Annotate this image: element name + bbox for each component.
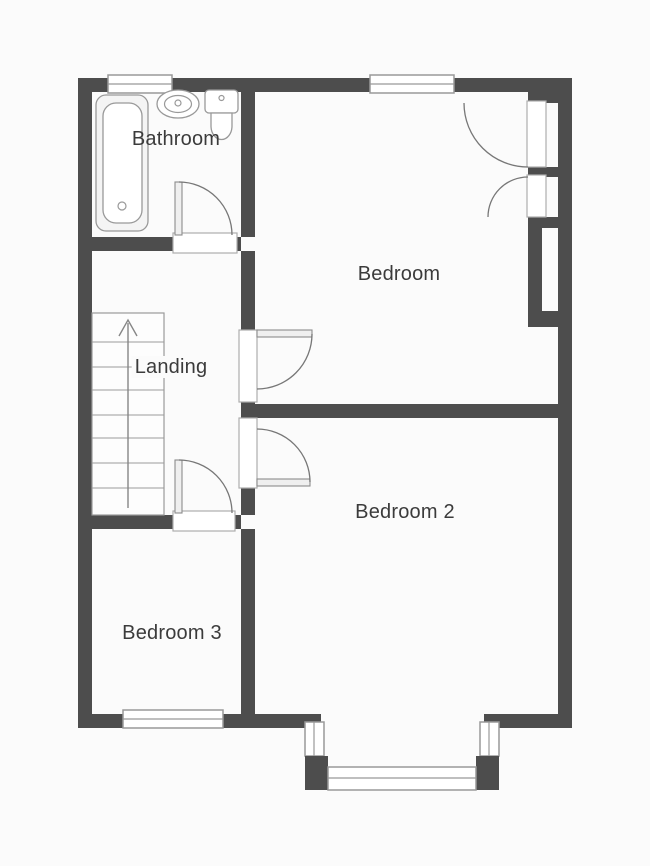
wall-center-vertical-2	[241, 251, 255, 332]
alcove-bottom-wall	[528, 311, 560, 327]
bathroom-window	[108, 75, 172, 93]
bedroom-window	[370, 75, 454, 93]
wall-right	[558, 78, 572, 728]
wardrobe-stub-lower	[528, 217, 560, 228]
bedroom-wardrobe-structure	[464, 92, 560, 327]
wall-center-vertical-4	[241, 488, 255, 515]
wall-bathroom-south-left	[92, 237, 175, 251]
bathtub-icon	[96, 95, 148, 231]
wall-left	[78, 78, 92, 728]
alcove-left-wall	[528, 228, 542, 311]
bedroom-door	[239, 330, 312, 402]
bedroom3-window	[123, 710, 223, 728]
bathroom-fixtures	[96, 90, 238, 231]
wall-center-vertical-3	[241, 400, 255, 420]
basin-icon	[157, 90, 199, 118]
wardrobe-door-arc-2	[488, 177, 528, 217]
windows	[108, 75, 499, 790]
wall-landing-south-left	[92, 515, 175, 529]
wardrobe-door-arc-1	[464, 103, 528, 167]
room-label-landing: Landing	[132, 356, 211, 378]
bedroom3-door	[173, 460, 235, 531]
bay-window	[305, 722, 499, 790]
stairs	[92, 313, 164, 515]
wall-center-vertical-1	[241, 92, 255, 237]
room-label-bedroom2: Bedroom 2	[355, 502, 455, 522]
room-label-bedroom: Bedroom	[358, 264, 441, 284]
floor-plan: Bathroom Bedroom Landing Bedroom 2 Bedro…	[0, 0, 650, 866]
room-label-bathroom: Bathroom	[132, 129, 220, 149]
bay-post-left	[305, 756, 328, 790]
wall-bedroom-divider	[255, 404, 558, 418]
wall-center-vertical-5	[241, 529, 255, 714]
bathroom-door	[173, 182, 237, 253]
wardrobe-door-leaf-1	[527, 101, 546, 167]
room-label-bedroom3: Bedroom 3	[122, 623, 222, 643]
bedroom2-door	[239, 418, 310, 488]
floor-plan-drawing	[0, 0, 650, 866]
bay-post-right	[476, 756, 499, 790]
wardrobe-door-leaf-2	[527, 175, 546, 217]
